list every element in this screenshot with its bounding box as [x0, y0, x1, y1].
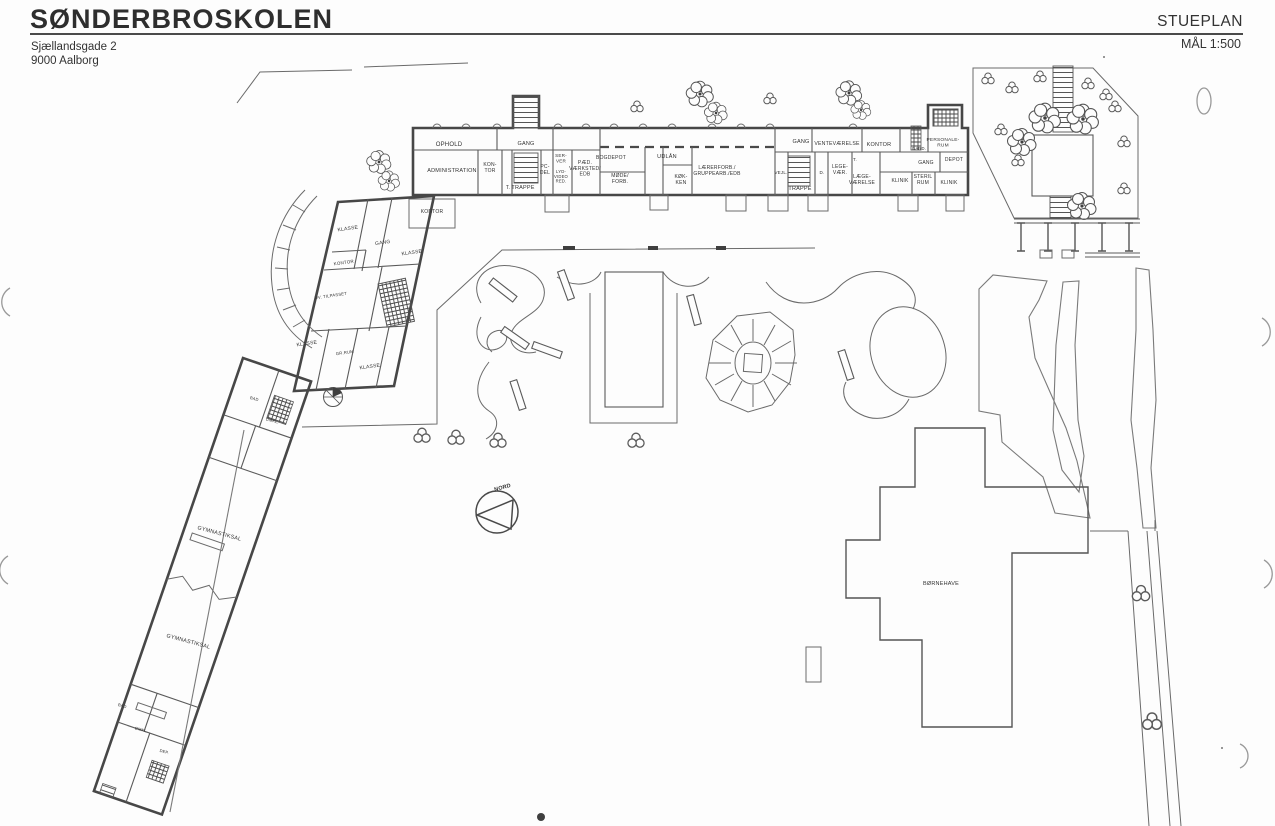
pergola-post-icon — [1044, 223, 1052, 251]
tree-icon — [367, 151, 391, 174]
bush-icon — [1034, 71, 1046, 82]
bush-icon — [1118, 136, 1130, 147]
bush-icon — [1143, 713, 1162, 729]
amphitheatre — [706, 312, 797, 412]
bush-icon — [414, 428, 430, 442]
room-label-udlaan: UDLÅN — [657, 153, 677, 160]
building-label-boernehave: BØRNEHAVE — [923, 581, 959, 587]
road-southeast — [1090, 520, 1181, 826]
bush-icon — [1132, 586, 1149, 601]
bench-icon — [501, 327, 530, 350]
gym-stair-south — [146, 760, 169, 783]
bush-icon — [1082, 78, 1094, 89]
bench-icon — [489, 278, 517, 302]
tree-icon — [1068, 193, 1097, 220]
entrance-stair-east — [933, 109, 958, 126]
gym-outline — [94, 358, 311, 814]
room-label-klasse-4: KLASSE — [359, 363, 381, 372]
south-entrance-stubs — [545, 195, 964, 212]
sand-court-outer — [590, 293, 677, 423]
tree-icon — [378, 171, 399, 191]
playground — [302, 246, 957, 447]
room-label-tilpasset: UV. TILPASSET — [314, 291, 347, 301]
stair-trappe-west — [514, 153, 538, 183]
floor-plan-page: SØNDERBROSKOLEN Sjællandsgade 2 9000 Aal… — [0, 0, 1275, 826]
room-label-gang-wing: GANG — [375, 239, 391, 247]
pergola-post-icon — [1017, 223, 1025, 251]
site-boundary-lines — [237, 63, 468, 103]
room-label-ventevaerelse: VENTEVÆRELSE — [814, 141, 860, 147]
bush-dark-icon — [537, 813, 545, 821]
room-label-bad-2: BAD — [117, 702, 127, 709]
bush-icon — [490, 433, 506, 447]
room-label-pc-del: PC-DEL — [540, 164, 550, 176]
bush-icon — [448, 430, 464, 444]
gym-wing — [94, 358, 311, 814]
room-label-t-east: T. — [853, 157, 857, 162]
oval-mound — [859, 297, 958, 407]
bush-icon — [1118, 183, 1130, 194]
entrance-stair-north — [513, 96, 539, 128]
kindergarten-outline — [846, 428, 1088, 727]
room-label-t-west: T. — [506, 185, 510, 191]
bush-icon — [1012, 155, 1024, 166]
garden-northeast — [973, 66, 1140, 258]
bench-icon — [687, 295, 702, 326]
bush-icon — [1006, 82, 1018, 93]
bench-icon — [838, 350, 854, 381]
room-label-kontor-admin: KON-TOR — [483, 162, 496, 174]
bench-icon — [558, 270, 575, 301]
room-label-klinik-2: KLINIK — [940, 180, 958, 186]
room-label-administration: ADMINISTRATION — [427, 168, 476, 174]
bush-icon — [1100, 89, 1112, 100]
room-label-koekken: KØK-KEN — [674, 174, 687, 186]
main-wing — [413, 96, 968, 212]
room-label-kontor-wing: KONTOR — [333, 259, 354, 267]
room-label-bad-1: BAD — [249, 395, 259, 402]
bush-icon — [995, 124, 1007, 135]
room-label-klasse-2: KLASSE — [401, 249, 423, 258]
gym-side-path — [170, 430, 244, 812]
room-label-steril-rum: STERILRUM — [914, 174, 933, 186]
room-label-klasse-3: KLASSE — [296, 340, 318, 349]
gym-entry-steps — [100, 784, 116, 798]
room-label-trappe-east: TRAPPE — [788, 186, 811, 192]
room-label-laegevaerelse: LÆGE-VÆRELSE — [849, 174, 876, 186]
sand-court-inner — [605, 272, 663, 407]
room-label-gymnastiksal-1: GYMNASTIKSAL — [197, 525, 242, 542]
room-label-dep: DEP. — [159, 748, 170, 755]
pergola-post-icon — [1098, 223, 1106, 251]
room-label-ophold: OPHOLD — [436, 142, 463, 148]
left-wing-outline — [294, 196, 434, 391]
room-label-klasse-1: KLASSE — [337, 225, 359, 234]
room-label-gr-rum: GR.RUM — [335, 349, 354, 357]
north-compass — [476, 491, 518, 533]
room-label-bogdepot: BOGDEPOT — [596, 155, 626, 161]
room-label-legevaer: LEGE-VÆR. — [832, 164, 848, 176]
tree-icon — [704, 102, 727, 124]
shed — [806, 647, 821, 682]
room-label-trappe-west: TRAPPE — [511, 185, 534, 191]
bush-icon — [982, 73, 994, 84]
pergola-post-icon — [1071, 223, 1079, 251]
left-wing — [271, 190, 455, 407]
room-label-personalerum: PERSONALE-RUM — [927, 137, 960, 149]
ramp — [271, 190, 322, 348]
room-label-vejl: VEJL. — [774, 170, 787, 175]
tree-icon — [686, 81, 713, 107]
room-label-server: SER-VER — [555, 153, 567, 163]
room-label-paed-vaerksted: PÆD.VÆRKSTED/EDB — [569, 160, 601, 178]
bush-icon — [631, 101, 643, 112]
pergola-post-icon — [1125, 223, 1133, 251]
room-label-gard: GARD. — [912, 146, 926, 151]
room-label-kontor-east: KONTOR — [867, 142, 892, 148]
bench-icon — [532, 342, 563, 359]
room-label-moede-forb: MØDE/FORB. — [611, 173, 629, 185]
room-label-lyd-video: LYD-VIDEORED. — [554, 169, 569, 184]
site-plan-drawing: OPHOLDGANGADMINISTRATIONKON-TORT.TRAPPEP… — [0, 0, 1275, 826]
spiral-stair — [324, 387, 343, 406]
room-label-kontor-wing-top: KONTOR — [421, 209, 444, 215]
bush-icon — [764, 93, 776, 104]
room-label-omkl-2: OMKL. — [134, 725, 148, 733]
room-label-gang-east: GANG — [793, 139, 810, 145]
break-line — [166, 572, 237, 605]
stair-left-wing — [378, 278, 415, 327]
room-label-klinik-1: KLINIK — [891, 178, 909, 184]
room-label-depot: DEPOT — [945, 157, 963, 163]
room-label-gang-klinik: GANG — [918, 160, 934, 166]
landscape-mounds — [979, 268, 1156, 528]
bench-icon — [510, 380, 526, 411]
room-labels: OPHOLDGANGADMINISTRATIONKON-TORT.TRAPPEP… — [117, 137, 963, 755]
room-label-gang-west: GANG — [518, 141, 535, 147]
room-label-laererforb: LÆRERFORB./GRUPPEARB./EDB — [693, 165, 741, 177]
kindergarten-building — [806, 428, 1088, 727]
bush-icon — [628, 433, 644, 447]
room-label-d: D. — [820, 170, 825, 175]
garden-square — [1032, 135, 1093, 196]
stair-trappe-east — [788, 156, 810, 186]
bush-icon — [1109, 101, 1121, 112]
